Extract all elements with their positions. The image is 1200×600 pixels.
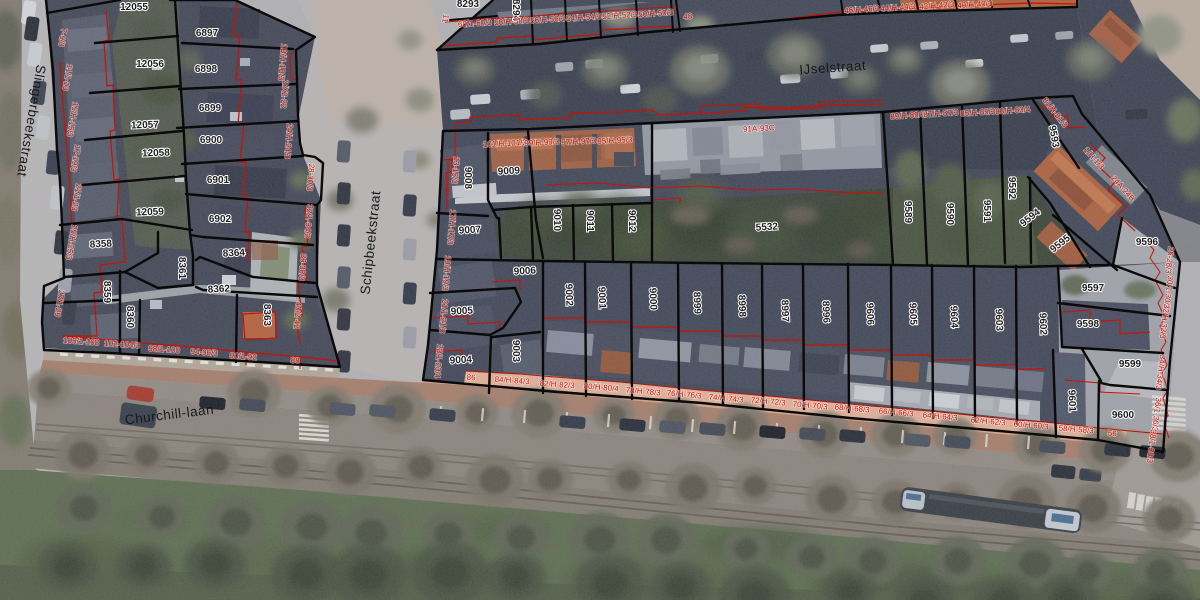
svg-text:8364: 8364	[222, 247, 245, 259]
svg-text:9604: 9604	[948, 306, 960, 329]
svg-text:9001: 9001	[596, 287, 608, 310]
svg-text:9605: 9605	[907, 303, 919, 326]
svg-text:9003: 9003	[510, 340, 521, 363]
svg-text:12059: 12059	[136, 207, 165, 219]
svg-text:8362: 8362	[207, 283, 230, 295]
svg-text:90/1-92: 90/1-92	[229, 351, 257, 362]
svg-text:88: 88	[290, 356, 300, 366]
svg-text:9010: 9010	[551, 209, 562, 232]
svg-text:8359: 8359	[101, 281, 112, 304]
svg-text:99/H-99/3: 99/H-99/3	[524, 137, 560, 148]
svg-text:9012: 9012	[626, 210, 637, 233]
svg-text:8997: 8997	[779, 300, 791, 323]
svg-text:9008: 9008	[462, 167, 473, 190]
svg-text:6902: 6902	[209, 214, 232, 225]
svg-text:9592: 9592	[1006, 177, 1017, 200]
svg-text:95/H-95/3: 95/H-95/3	[597, 135, 633, 146]
svg-text:9004: 9004	[449, 354, 472, 366]
svg-text:9603: 9603	[993, 309, 1005, 332]
svg-text:8999: 8999	[691, 292, 703, 315]
svg-text:9600: 9600	[1112, 410, 1135, 421]
svg-text:9000: 9000	[647, 288, 659, 311]
svg-text:48: 48	[683, 12, 693, 22]
svg-text:9606: 9606	[864, 303, 876, 326]
svg-text:8996: 8996	[820, 301, 832, 324]
svg-text:6899: 6899	[199, 103, 222, 114]
svg-text:9006: 9006	[513, 265, 536, 277]
svg-text:8293: 8293	[457, 0, 480, 10]
svg-text:12058: 12058	[142, 148, 171, 160]
svg-text:6898: 6898	[195, 64, 218, 75]
svg-text:12055: 12055	[120, 2, 148, 13]
svg-text:9596: 9596	[1136, 237, 1159, 248]
svg-text:9002: 9002	[563, 284, 575, 307]
svg-text:9591: 9591	[981, 200, 992, 223]
svg-text:6897: 6897	[196, 28, 219, 39]
svg-text:5532: 5532	[755, 221, 778, 233]
svg-text:9005: 9005	[450, 305, 473, 317]
svg-text:9011: 9011	[584, 210, 595, 232]
svg-text:91A-93C: 91A-93C	[743, 123, 775, 134]
svg-text:9601: 9601	[1066, 390, 1078, 413]
svg-text:9007: 9007	[458, 224, 481, 236]
svg-text:9009: 9009	[497, 165, 520, 177]
svg-text:9590: 9590	[944, 203, 955, 226]
svg-text:94-96/3: 94-96/3	[190, 347, 218, 358]
svg-text:86: 86	[466, 373, 476, 383]
svg-text:9598: 9598	[1077, 319, 1100, 330]
svg-text:8998: 8998	[736, 295, 748, 318]
svg-text:8363: 8363	[261, 304, 272, 327]
svg-text:97/H-97/3: 97/H-97/3	[561, 136, 597, 147]
svg-text:9597: 9597	[1082, 283, 1105, 294]
svg-text:9599: 9599	[1119, 359, 1142, 370]
svg-text:6901: 6901	[207, 175, 230, 186]
svg-text:8358: 8358	[89, 238, 112, 250]
svg-text:8360: 8360	[124, 306, 135, 329]
svg-text:6900: 6900	[200, 135, 223, 146]
svg-text:9602: 9602	[1037, 313, 1049, 336]
svg-text:8361: 8361	[176, 257, 187, 280]
svg-text:9589: 9589	[902, 201, 913, 224]
svg-text:12057: 12057	[131, 120, 160, 132]
svg-text:12056: 12056	[136, 59, 164, 70]
svg-text:56: 56	[1107, 429, 1117, 439]
